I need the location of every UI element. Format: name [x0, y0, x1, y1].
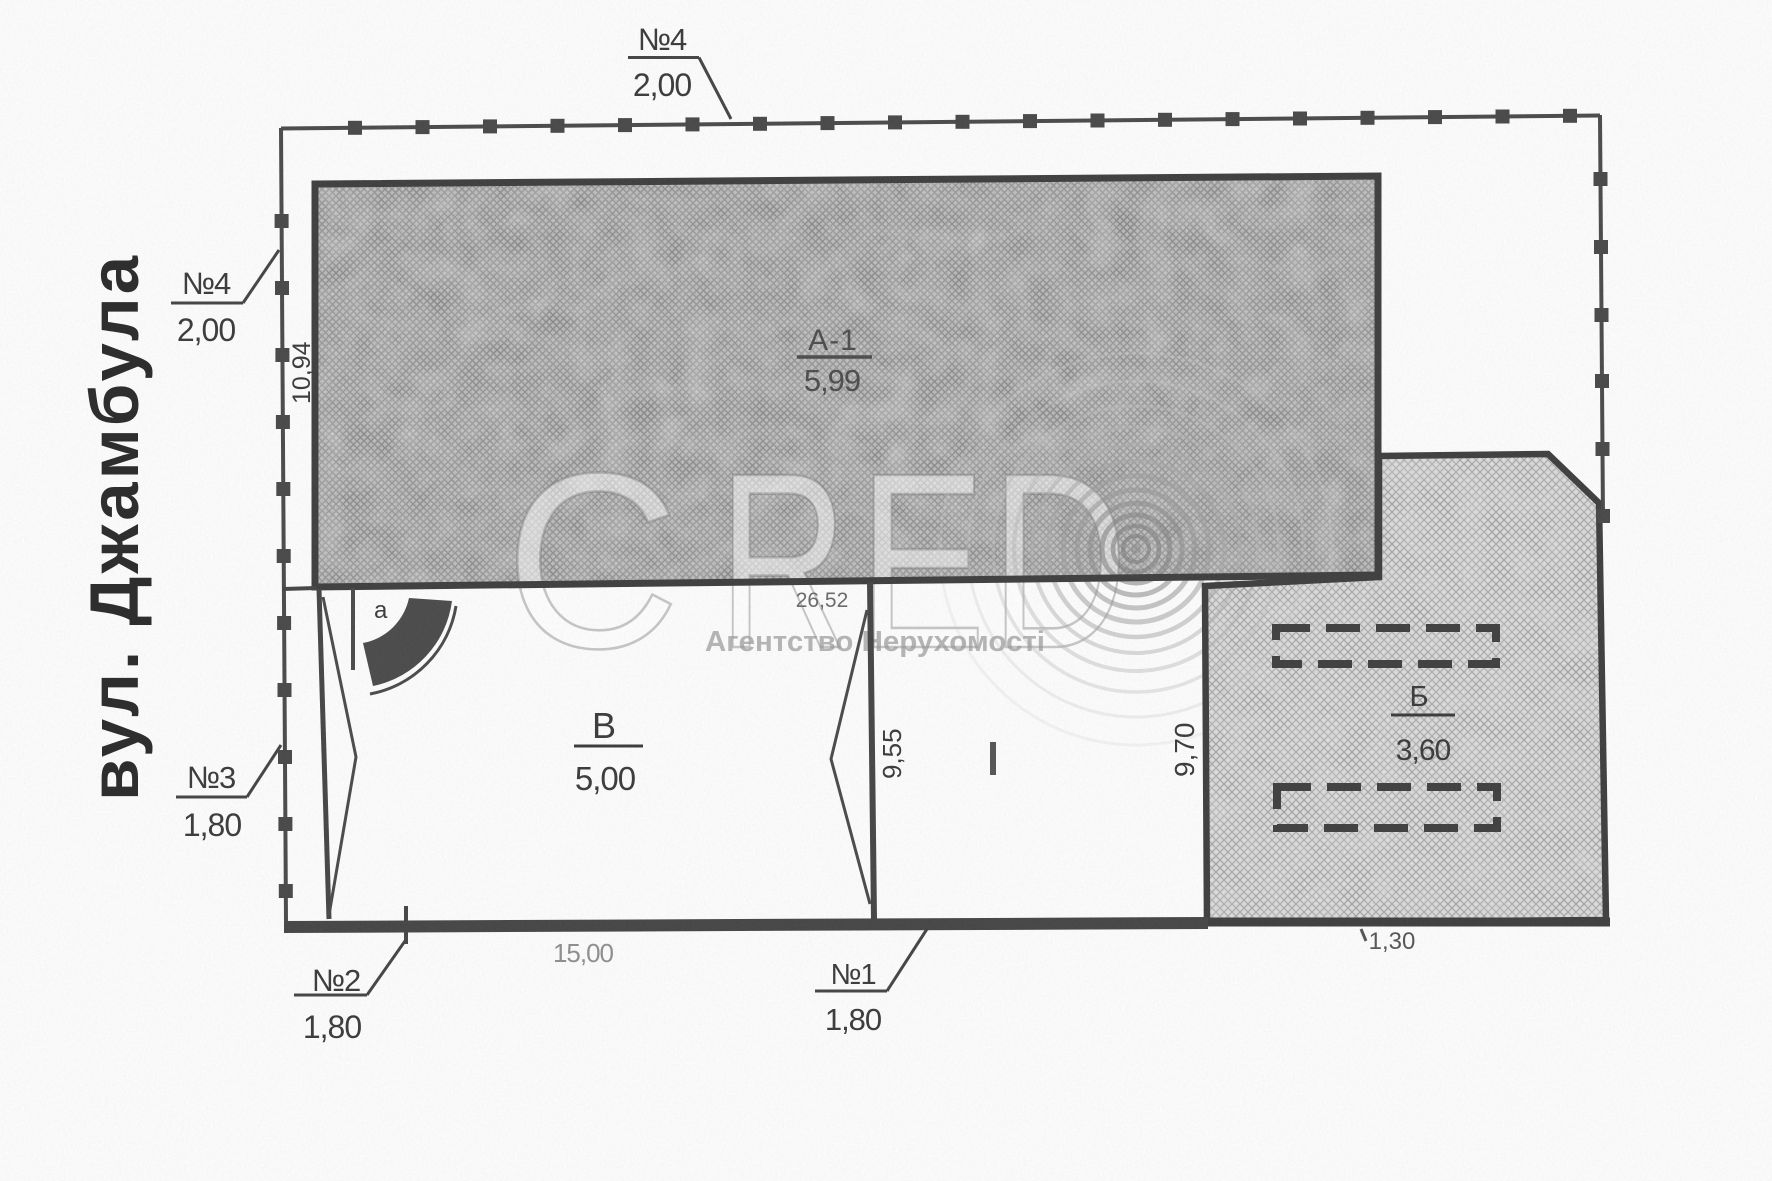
svg-text:вул. Джамбула: вул. Джамбула	[76, 253, 153, 801]
